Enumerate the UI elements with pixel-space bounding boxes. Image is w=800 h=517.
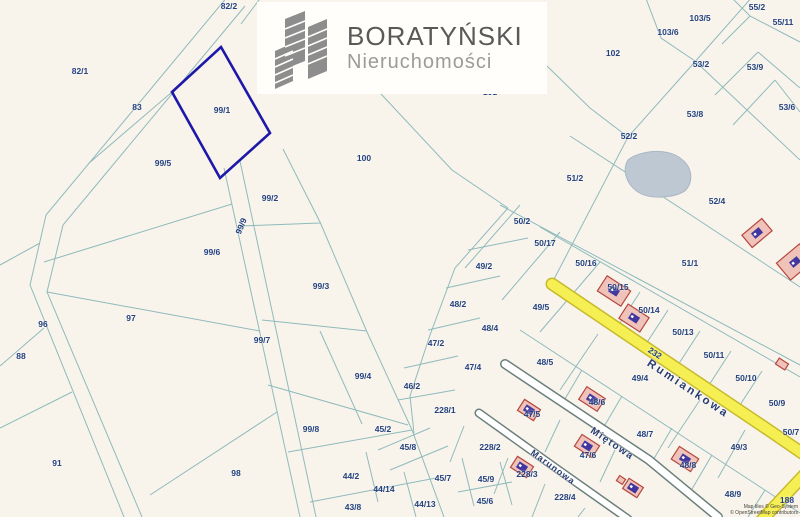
parcel-label-51-2: 51/2	[567, 173, 584, 183]
parcel-label-49-4: 49/4	[632, 373, 649, 383]
parcel-label-48-2: 48/2	[450, 299, 467, 309]
parcel-label-97: 97	[126, 313, 135, 323]
parcel-label-48-8: 48/8	[680, 460, 697, 470]
buildings-icon	[271, 7, 333, 89]
parcel-label-50-10: 50/10	[735, 373, 756, 383]
parcel-label-102: 102	[606, 48, 620, 58]
parcel-label-45-6: 45/6	[477, 496, 494, 506]
street-label-marunowa: Marunowa	[529, 448, 577, 487]
parcel-label-48-9: 48/9	[725, 489, 742, 499]
logo-subtitle: Nieruchomości	[347, 52, 523, 73]
parcel-label-99-7: 99/7	[254, 335, 271, 345]
parcel-label-48-4: 48/4	[482, 323, 499, 333]
brand-logo: BORATYŃSKI Nieruchomości	[257, 2, 547, 94]
parcel-label-47-2: 47/2	[428, 338, 445, 348]
parcel-label-53-9: 53/9	[747, 62, 764, 72]
parcel-label-50-15: 50/15	[607, 282, 628, 292]
parcel-label-49-3: 49/3	[731, 442, 748, 452]
parcel-label-49-2: 49/2	[476, 261, 493, 271]
parcel-label-52-4: 52/4	[709, 196, 726, 206]
parcel-label-100: 100	[357, 153, 371, 163]
parcel-label-50-13: 50/13	[672, 327, 693, 337]
parcel-label-98: 98	[231, 468, 240, 478]
parcel-label-50-16: 50/16	[575, 258, 596, 268]
parcel-label-99-3: 99/3	[313, 281, 330, 291]
parcel-label-48-5: 48/5	[537, 357, 554, 367]
parcel-label-51-1: 51/1	[682, 258, 699, 268]
parcel-label-43-8: 43/8	[345, 502, 362, 512]
parcel-label-48-7: 48/7	[637, 429, 654, 439]
parcel-label-99-2: 99/2	[262, 193, 279, 203]
parcel-label-46-2: 46/2	[404, 381, 421, 391]
parcel-label-50-7: 50/7	[783, 427, 800, 437]
parcel-label-82-2: 82/2	[221, 1, 238, 11]
parcel-label-44-2: 44/2	[343, 471, 360, 481]
parcel-label-228-2: 228/2	[479, 442, 500, 452]
map-attribution: Map tiles © Geo-System © OpenStreetMap c…	[730, 504, 798, 517]
parcel-label-50-14: 50/14	[638, 305, 659, 315]
parcel-label-52-2: 52/2	[621, 131, 638, 141]
parcel-label-53-6: 53/6	[779, 102, 796, 112]
parcel-label-228-3: 228/3	[516, 469, 537, 479]
parcel-label-50-17: 50/17	[534, 238, 555, 248]
parcel-label-228-4: 228/4	[554, 492, 575, 502]
parcel-label-91: 91	[52, 458, 61, 468]
parcel-label-44-13: 44/13	[414, 499, 435, 509]
parcel-label-103-5: 103/5	[689, 13, 710, 23]
parcel-label-47-4: 47/4	[465, 362, 482, 372]
parcel-label-45-8: 45/8	[400, 442, 417, 452]
logo-title: BORATYŃSKI	[347, 23, 523, 50]
parcel-label-45-9: 45/9	[478, 474, 495, 484]
parcel-label-45-2: 45/2	[375, 424, 392, 434]
map-canvas[interactable]: 82/282/18399/199/510099/299/999/699/3969…	[0, 0, 800, 517]
parcel-label-48-6: 48/6	[589, 397, 606, 407]
parcel-label-99-4: 99/4	[355, 371, 372, 381]
parcel-label-99-9: 99/9	[233, 216, 248, 235]
parcel-label-45-7: 45/7	[435, 473, 452, 483]
parcel-label-50-9: 50/9	[769, 398, 786, 408]
parcel-label-88: 88	[16, 351, 25, 361]
parcel-label-103-6: 103/6	[657, 27, 678, 37]
parcel-label-99-6: 99/6	[204, 247, 221, 257]
parcel-label-44-14: 44/14	[373, 484, 394, 494]
parcel-label-50-2: 50/2	[514, 216, 531, 226]
attribution-line2: © OpenStreetMap contributors	[730, 510, 798, 516]
parcel-label-55-2: 55/2	[749, 2, 766, 12]
parcel-label-47-6: 47/6	[580, 450, 597, 460]
parcel-label-99-5: 99/5	[155, 158, 172, 168]
parcel-label-83: 83	[132, 102, 141, 112]
parcel-label-96: 96	[38, 319, 47, 329]
parcel-label-47-5: 47/5	[524, 409, 541, 419]
parcel-label-99-8: 99/8	[303, 424, 320, 434]
parcel-label-82-1: 82/1	[72, 66, 89, 76]
parcel-label-55-11: 55/11	[773, 17, 794, 27]
parcel-label-228-1: 228/1	[434, 405, 455, 415]
parcel-label-49-5: 49/5	[533, 302, 550, 312]
parcel-label-53-8: 53/8	[687, 109, 704, 119]
parcel-label-99-1: 99/1	[214, 105, 231, 115]
parcel-label-50-11: 50/11	[704, 350, 725, 360]
parcel-label-53-2: 53/2	[693, 59, 710, 69]
street-label-rumiankowa: Rumiankowa	[645, 358, 732, 421]
